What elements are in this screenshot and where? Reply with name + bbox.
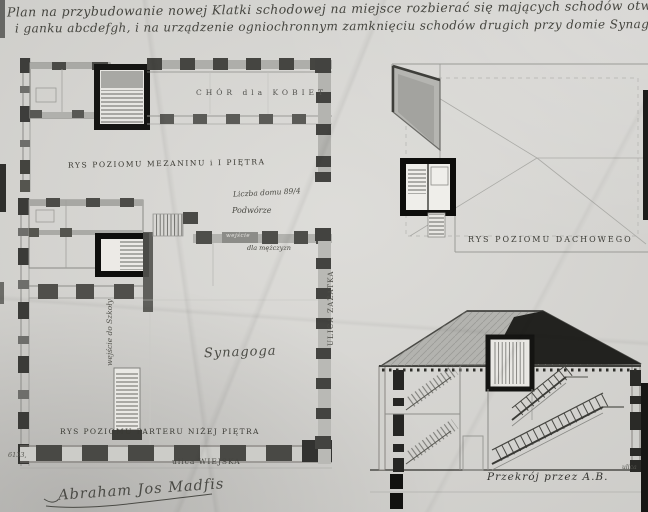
school-entrance-note: wejście do Szkoły <box>106 299 115 366</box>
ground-plan-caption: RYS POZIOMU PARTERU NIŻEJ PIĘTRA <box>60 428 260 437</box>
mezzanine-floor-plan <box>20 58 332 192</box>
synagogue-hall-label: Synagoga <box>204 345 277 362</box>
street-label-wiejska: ulica WIEJSKA <box>172 458 241 467</box>
section-street-note: ulica <box>622 465 637 472</box>
room-label-womens-choir: CHÓR dla KOBIET <box>196 89 327 98</box>
archive-number: 6133, <box>8 452 27 459</box>
street-label-right: ULICA ZAŻATKA <box>327 270 335 346</box>
scanned-architectural-drawing: Plan na przybudowanie nowej Klatki schod… <box>0 0 648 512</box>
entrance-door-tag: wejście <box>226 233 250 239</box>
roof-plan-caption: RYS POZIOMU DACHOWEGO <box>468 235 633 244</box>
courtyard-label: Podwórze <box>232 206 271 215</box>
section-caption: Przekrój przez A.B. <box>487 471 608 483</box>
roof-plan <box>392 64 648 252</box>
mens-entrance-note: dla mężczyzn <box>247 245 291 252</box>
